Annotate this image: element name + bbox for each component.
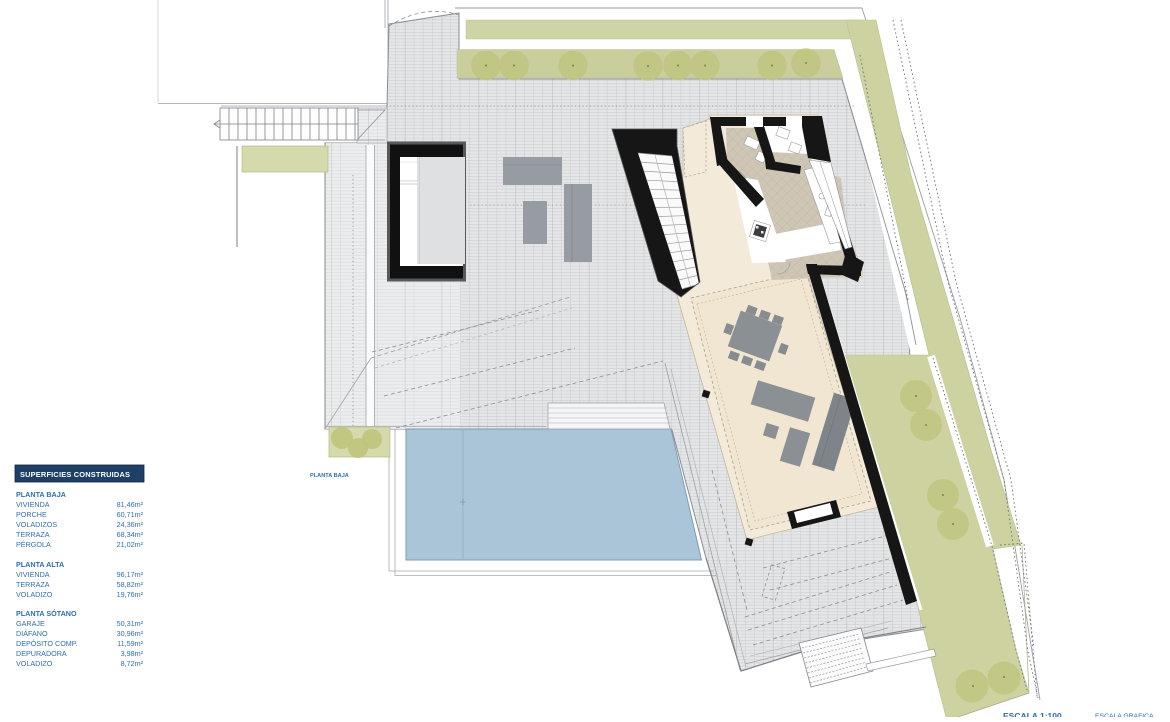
svg-text:50,31m²: 50,31m² xyxy=(117,619,144,628)
svg-text:8,72m²: 8,72m² xyxy=(121,659,144,668)
svg-text:58,82m²: 58,82m² xyxy=(117,580,144,589)
svg-text:GARAJE: GARAJE xyxy=(16,619,45,628)
svg-text:TERRAZA: TERRAZA xyxy=(16,530,50,539)
svg-text:60,71m²: 60,71m² xyxy=(117,510,144,519)
svg-text:24,36m²: 24,36m² xyxy=(117,520,144,529)
svg-text:PLANTA SÓTANO: PLANTA SÓTANO xyxy=(16,609,77,618)
svg-text:TERRAZA: TERRAZA xyxy=(16,580,50,589)
svg-text:11,59m²: 11,59m² xyxy=(117,639,143,648)
svg-text:DEPÓSITO COMP.: DEPÓSITO COMP. xyxy=(16,639,78,648)
svg-text:30,96m²: 30,96m² xyxy=(117,629,144,638)
svg-text:VOLADIZO: VOLADIZO xyxy=(16,590,53,599)
svg-text:3,98m²: 3,98m² xyxy=(121,649,144,658)
svg-text:68,34m²: 68,34m² xyxy=(117,530,144,539)
svg-text:VIVIENDA: VIVIENDA xyxy=(16,570,50,579)
svg-text:96,17m²: 96,17m² xyxy=(117,570,144,579)
svg-text:VIVIENDA: VIVIENDA xyxy=(16,500,50,509)
svg-text:PORCHE: PORCHE xyxy=(16,510,47,519)
svg-text:DIÁFANO: DIÁFANO xyxy=(16,629,48,638)
svg-text:VOLADIZOS: VOLADIZOS xyxy=(16,520,57,529)
svg-text:DEPURADORA: DEPURADORA xyxy=(16,649,67,658)
svg-text:SUPERFICIES CONSTRUIDAS: SUPERFICIES CONSTRUIDAS xyxy=(20,470,130,479)
svg-text:PLANTA ALTA: PLANTA ALTA xyxy=(16,560,64,569)
svg-text:VOLADIZO: VOLADIZO xyxy=(16,659,53,668)
svg-text:19,76m²: 19,76m² xyxy=(117,590,144,599)
svg-text:PLANTA BAJA: PLANTA BAJA xyxy=(16,490,66,499)
svg-text:ESCALA GRAFICA: ESCALA GRAFICA xyxy=(1095,713,1154,717)
svg-text:PLANTA BAJA: PLANTA BAJA xyxy=(310,473,349,479)
svg-text:21,02m²: 21,02m² xyxy=(117,540,144,549)
svg-text:ESCALA 1:100: ESCALA 1:100 xyxy=(1003,711,1062,717)
svg-text:81,46m²: 81,46m² xyxy=(117,500,144,509)
svg-text:PÉRGOLA: PÉRGOLA xyxy=(16,540,51,549)
